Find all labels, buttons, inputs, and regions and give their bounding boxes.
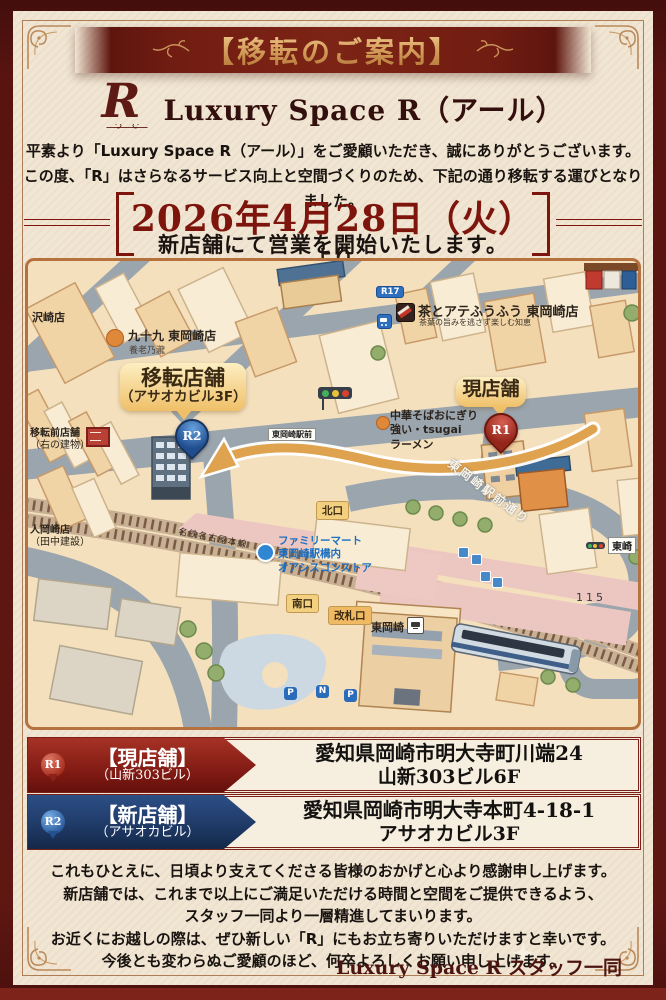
station-label: 東岡崎 [371,617,424,635]
ribbon-flourish-icon [149,39,191,61]
closing-line: これもひとえに、日頃より支えてくださる皆様のおかげと心より感謝申し上げます。 [14,860,652,883]
familymart-label: ファミリーマート東岡崎駅構内オアシスコンストア [278,535,372,575]
north-gate-badge: 北口 [316,501,349,520]
current-store-address: 愛知県岡崎市明大寺町川端24 山新303ビル6F [266,738,632,792]
outer-frame: 【移転のご案内】 R Luxury Space R（アール） 平素より「Luxu… [0,0,666,1000]
shop-marker-icon [106,329,124,347]
old-store-note-sub: （右の建物） [30,436,90,451]
ribbon-flourish-icon [475,39,517,61]
ramen-shop-icon [376,416,390,430]
map-label-shop-sub: 茶葉の旨みを逃さず楽しむ知恵 [419,317,531,328]
station-facility-icon [471,554,482,565]
current-store-balloon: 現店舗 [456,377,526,407]
familymart-pin-icon [256,543,275,562]
current-store-block: R1 【現店舗】 （山新303ビル） [28,738,256,792]
ticket-gate-badge: 改札口 [328,606,372,625]
station-facility-icon [480,571,491,582]
corner-flourish-icon [595,23,641,69]
area-map: 沢崎店 九十九 東岡崎店 養老乃瀧 茶とアテふうふう 東岡崎店 茶葉の旨みを逃さ… [25,258,641,730]
map-label-shop: 九十九 東岡崎店 [128,327,216,344]
route-115-label: 115 [576,591,606,604]
title-ribbon: 【移転のご案内】 [75,27,591,73]
parking-badge: P [284,687,297,700]
map-label-shop: 沢崎店 [32,309,65,325]
old-store-building-icon [86,427,110,447]
opening-statement: 新店舗にて営業を開始いたします。 [130,229,536,259]
new-store-sub: （アサオカビル） [65,826,230,841]
brand-header: R Luxury Space R（アール） [0,84,666,133]
new-store-block: R2 【新店舗】 （アサオカビル） [28,795,256,849]
traffic-light-icon [318,387,352,399]
brand-name: Luxury Space R（アール） [163,89,564,129]
route-badge: R17 [376,286,404,298]
pin-r2-icon: R2 [41,810,65,834]
map-label-shop-sub: （田中建設） [30,533,90,548]
tea-shop-icon [396,303,415,322]
page-title: 【移転のご案内】 [205,29,461,71]
brand-logo-monogram: R [101,81,153,130]
closing-line: 新店舗では、これまで以上にご満足いただける時間と空間をご提供できるよう、 [14,883,652,906]
bus-stop-label: 東岡崎駅前 [268,428,316,441]
map-label-shop: 養老乃瀧 [129,343,165,356]
train-icon [407,617,424,634]
traffic-light-icon [586,542,605,549]
bus-stop-icon [377,314,392,329]
bottom-accent-band [0,988,666,1000]
current-store-row: R1 【現店舗】 （山新303ビル） 愛知県岡崎市明大寺町川端24 山新303ビ… [27,737,641,793]
decorative-rule [556,219,642,226]
signature: Luxury Space R スタッフ一同 [336,953,622,980]
date-notice: 2026年4月28日（火）より 新店舗にて営業を開始いたします。 [0,190,666,254]
closing-line: お近くにお越しの際は、ぜひ新しい「R」にもお立ち寄りいただけますと幸いです。 [14,928,652,951]
intro-line: 平素より「Luxury Space R（アール）」をご愛顧いただき、誠にありがと… [20,139,646,164]
parking-badge: P [344,689,357,702]
pin-r1-icon: R1 [41,753,65,777]
corner-flourish-icon [25,23,71,69]
new-store-address: 愛知県岡崎市明大寺本町4-18-1 アサオカビル3F [266,795,632,849]
decorative-rule [24,219,110,226]
closing-line: スタッフ一同より一層精進してまいります。 [14,905,652,928]
current-store-title: 【現店舗】 [65,747,230,769]
new-store-balloon: 移転店舗 （アサオカビル3F） [120,363,246,411]
current-store-sub: （山新303ビル） [65,769,230,784]
direction-sign: 東崎 [608,537,636,554]
ramen-shop-label: 中華そばおにぎり強い・tsugaiラーメン [390,409,478,452]
new-store-row: R2 【新店舗】 （アサオカビル） 愛知県岡崎市明大寺本町4-18-1 アサオカ… [27,794,641,850]
station-facility-icon [492,577,503,588]
new-store-title: 【新店舗】 [65,804,230,826]
station-facility-icon [458,547,469,558]
parking-badge: N [316,685,329,698]
south-gate-badge: 南口 [286,594,319,613]
